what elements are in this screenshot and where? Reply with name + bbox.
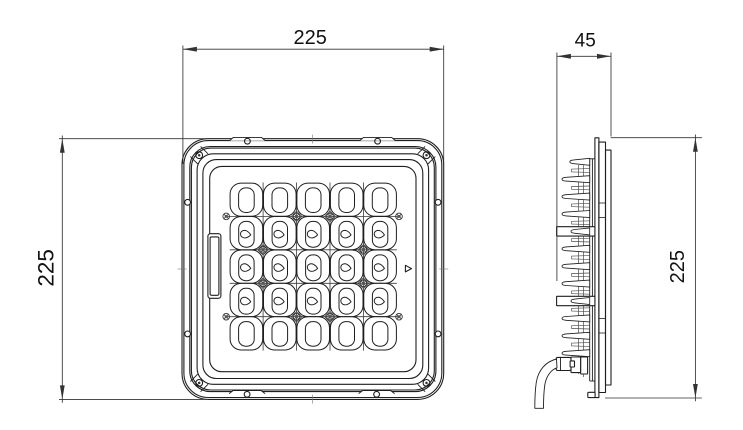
svg-text:225: 225 [667, 250, 689, 283]
svg-text:225: 225 [33, 249, 58, 287]
svg-text:45: 45 [575, 30, 596, 51]
svg-text:225: 225 [294, 27, 327, 49]
